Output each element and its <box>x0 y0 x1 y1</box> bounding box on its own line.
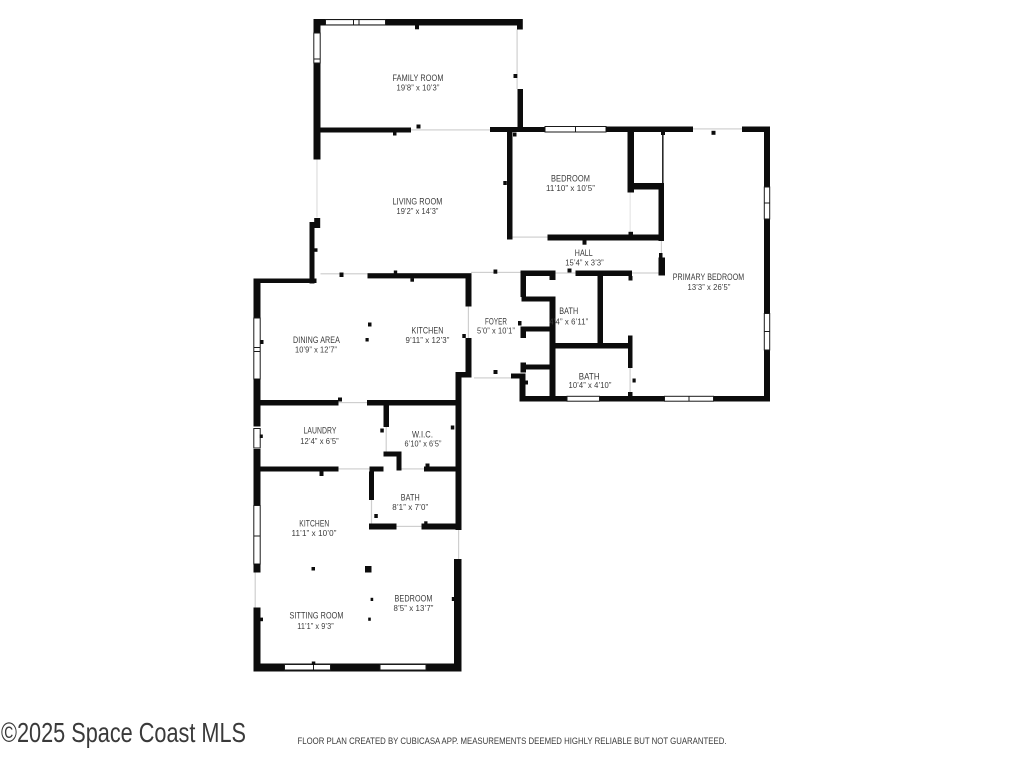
svg-text:FAMILY ROOM: FAMILY ROOM <box>393 73 444 83</box>
svg-text:6’10” x 6’5”: 6’10” x 6’5” <box>405 439 442 449</box>
svg-text:BATH: BATH <box>401 493 420 503</box>
svg-text:PRIMARY BEDROOM: PRIMARY BEDROOM <box>673 272 745 282</box>
svg-text:19’2” x 14’3”: 19’2” x 14’3” <box>397 206 439 216</box>
svg-text:KITCHEN: KITCHEN <box>299 519 329 529</box>
svg-text:4’4” x 6’11”: 4’4” x 6’11” <box>549 317 588 327</box>
svg-text:BATH: BATH <box>559 306 578 316</box>
svg-text:BEDROOM: BEDROOM <box>395 594 433 604</box>
svg-text:LIVING ROOM: LIVING ROOM <box>393 197 443 207</box>
svg-text:19’8” x 10’3”: 19’8” x 10’3” <box>397 83 440 93</box>
svg-text:FLOOR PLAN CREATED BY CUBICASA: FLOOR PLAN CREATED BY CUBICASA APP. MEAS… <box>298 736 727 747</box>
svg-text:©2025 Space Coast MLS: ©2025 Space Coast MLS <box>1 717 246 748</box>
svg-text:SITTING ROOM: SITTING ROOM <box>290 611 344 621</box>
svg-text:11’1” x 10’0”: 11’1” x 10’0” <box>292 528 337 538</box>
svg-text:BEDROOM: BEDROOM <box>551 174 590 184</box>
svg-text:8’5” x 13’7”: 8’5” x 13’7” <box>394 603 434 613</box>
svg-text:5’0” x 10’1”: 5’0” x 10’1” <box>477 326 515 336</box>
svg-text:13’3” x 26’5”: 13’3” x 26’5” <box>688 282 731 292</box>
svg-text:8’1” x 7’0”: 8’1” x 7’0” <box>392 502 428 512</box>
svg-text:15’4” x 3’3”: 15’4” x 3’3” <box>565 257 604 267</box>
svg-text:KITCHEN: KITCHEN <box>412 326 444 336</box>
svg-text:12’4” x 6’5”: 12’4” x 6’5” <box>300 436 339 446</box>
svg-text:DINING AREA: DINING AREA <box>293 335 340 345</box>
svg-text:11’10” x 10’5”: 11’10” x 10’5” <box>546 183 595 193</box>
svg-text:11’1” x 9’3”: 11’1” x 9’3” <box>297 621 334 631</box>
svg-text:10’4” x 4’10”: 10’4” x 4’10” <box>569 380 612 390</box>
svg-text:LAUNDRY: LAUNDRY <box>304 426 337 436</box>
svg-text:9’11” x 12’3”: 9’11” x 12’3” <box>406 335 450 345</box>
svg-text:10’9” x 12’7”: 10’9” x 12’7” <box>295 345 337 355</box>
